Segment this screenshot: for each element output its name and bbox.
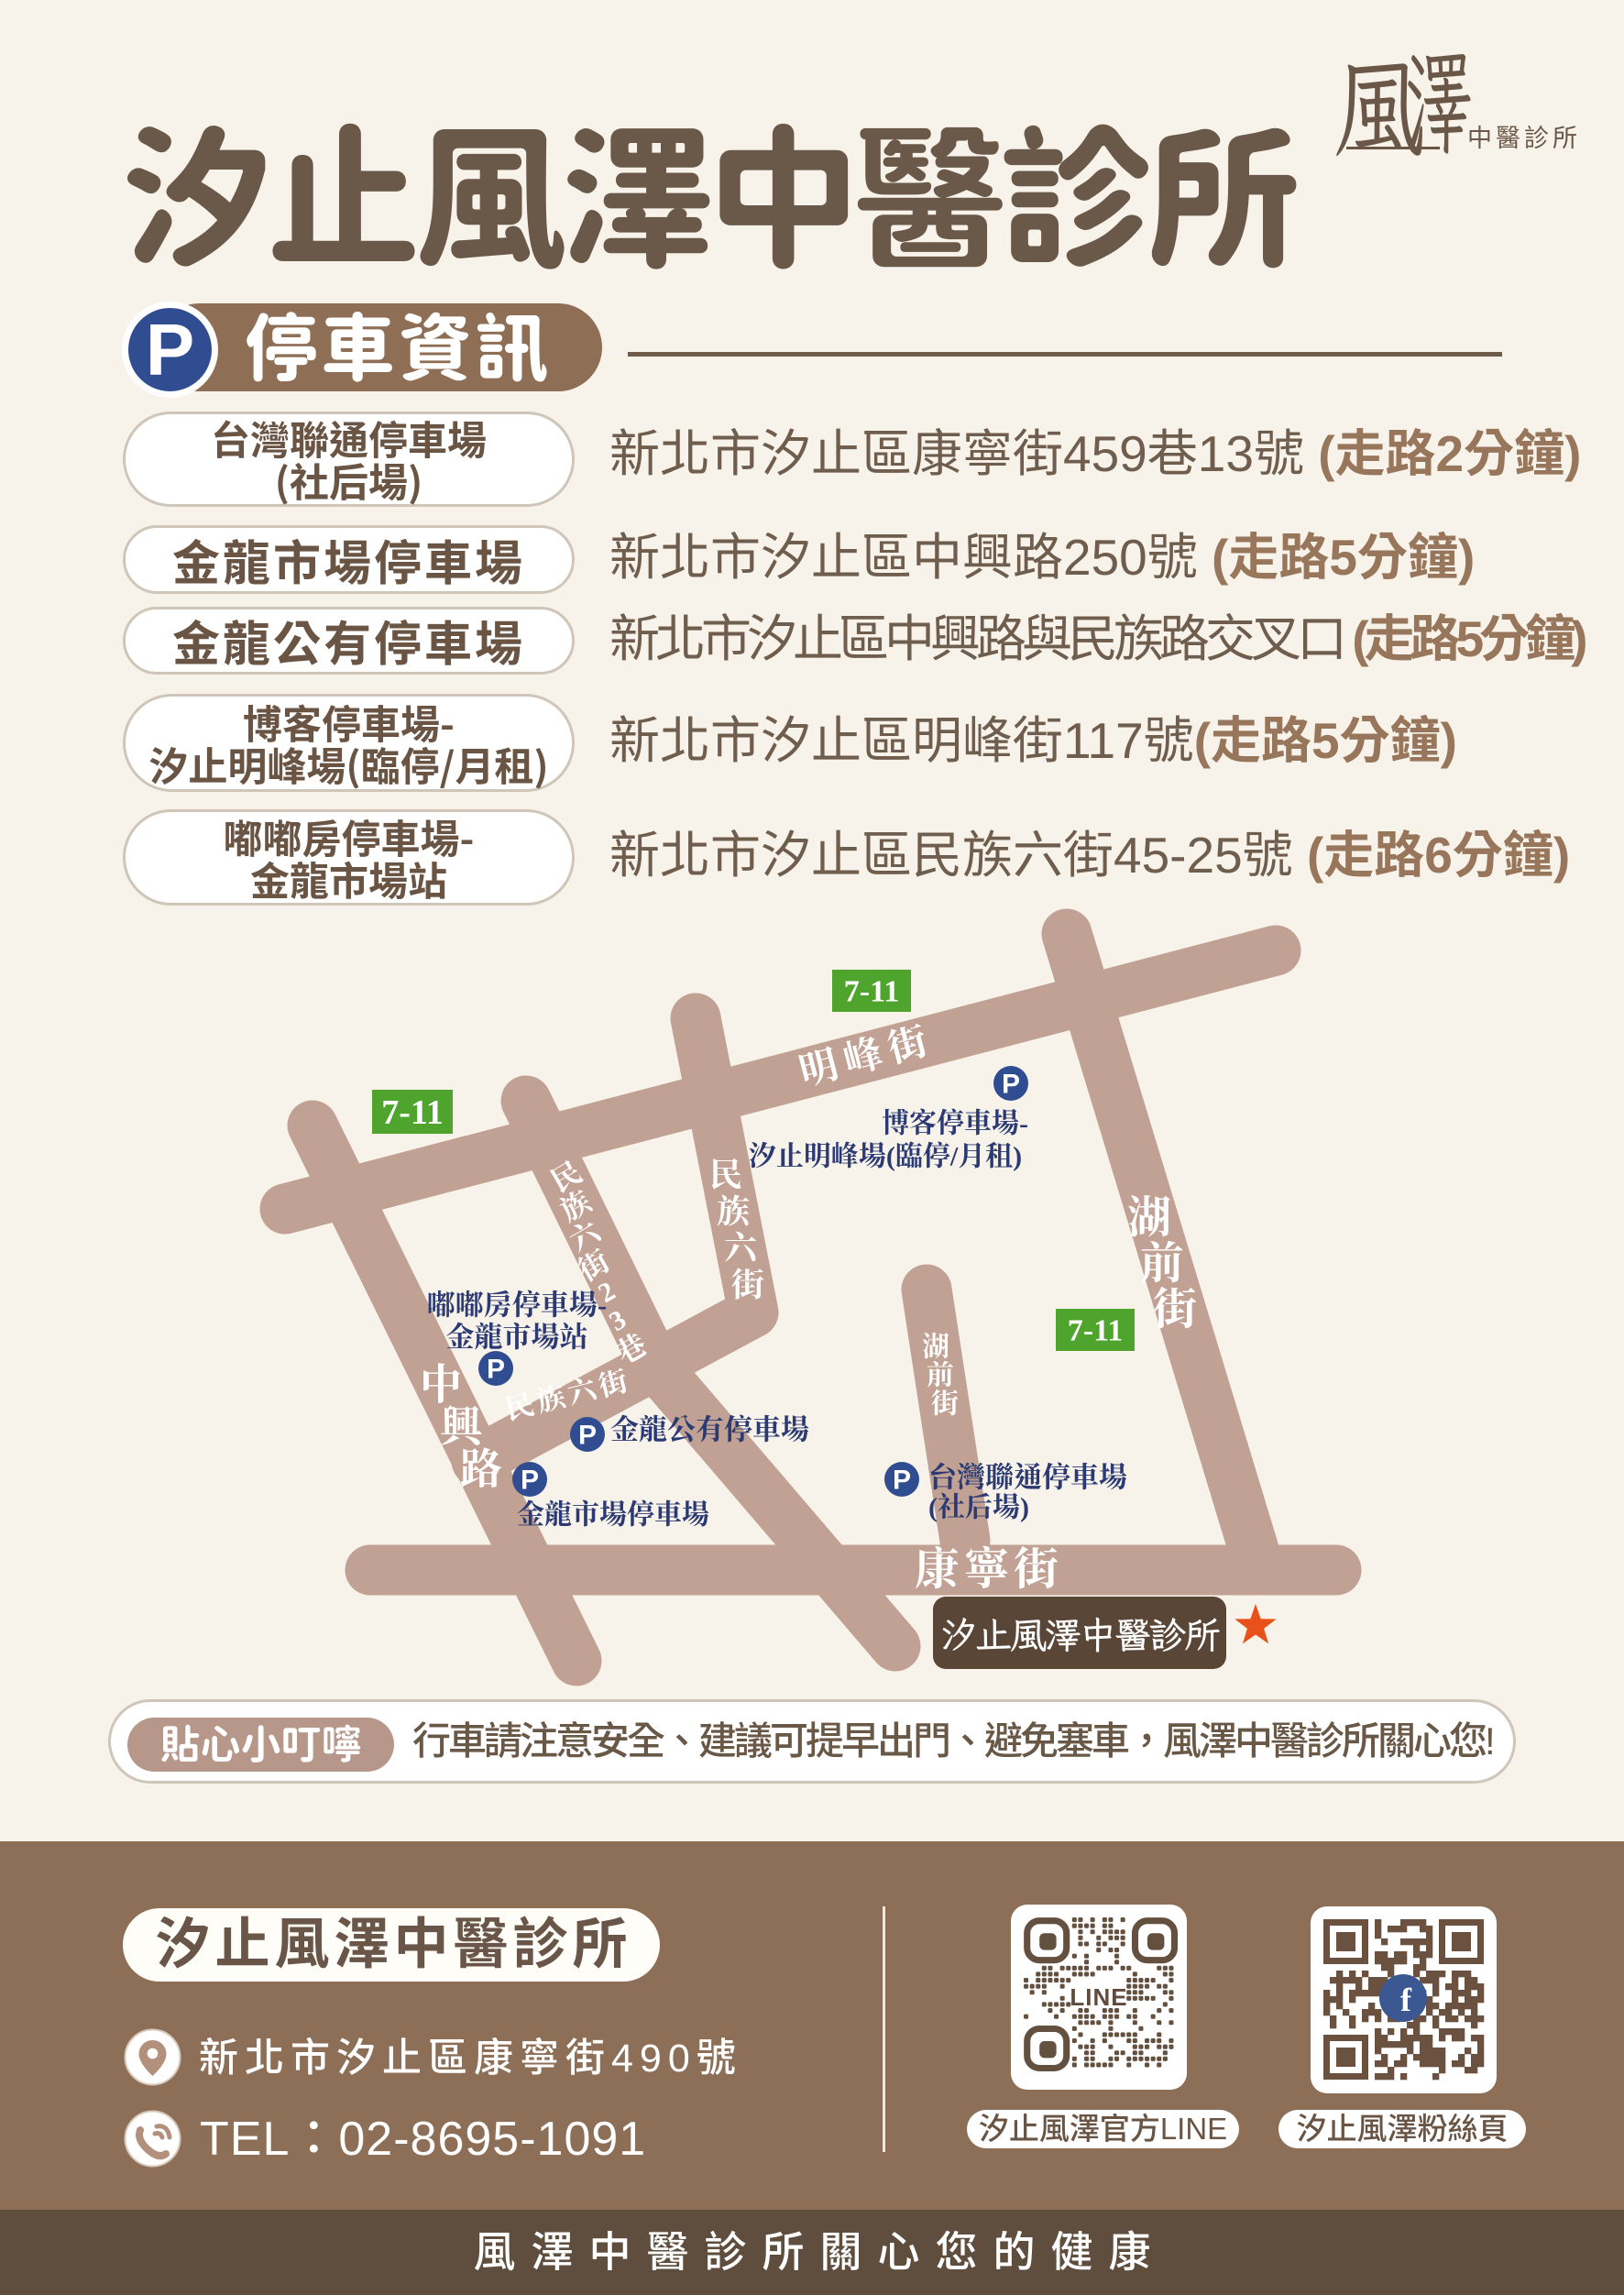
svg-text:P: P [578, 1421, 597, 1451]
svg-text:台灣聯通停車場: 台灣聯通停車場 [928, 1462, 1127, 1494]
svg-text:湖: 湖 [1127, 1194, 1171, 1243]
svg-text:興: 興 [440, 1404, 488, 1451]
svg-text:7-11: 7-11 [1068, 1314, 1123, 1348]
svg-text:康寧街: 康寧街 [915, 1544, 1063, 1595]
svg-text:嘟嘟房停車場-: 嘟嘟房停車場- [427, 1290, 607, 1322]
svg-text:7-11: 7-11 [844, 975, 899, 1009]
svg-text:街: 街 [1153, 1286, 1197, 1334]
svg-text:(社后場): (社后場) [928, 1493, 1029, 1523]
svg-text:金龍公有停車場: 金龍公有停車場 [610, 1414, 809, 1446]
svg-text:湖: 湖 [922, 1333, 949, 1363]
svg-text:f: f [1400, 1982, 1412, 2018]
svg-text:前: 前 [1140, 1240, 1184, 1289]
svg-text:街: 街 [731, 1267, 764, 1303]
svg-text:博客停車場-: 博客停車場- [882, 1109, 1028, 1139]
svg-text:金龍市場停車場: 金龍市場停車場 [517, 1500, 709, 1531]
svg-text:金龍市場站: 金龍市場站 [446, 1322, 588, 1354]
svg-text:汐止風澤中醫診所: 汐止風澤中醫診所 [940, 1611, 1220, 1659]
svg-text:P: P [521, 1466, 539, 1496]
svg-text:路: 路 [460, 1446, 502, 1493]
svg-text:LINE: LINE [1070, 1983, 1127, 2011]
svg-text:P: P [893, 1466, 911, 1496]
svg-text:汐止明峰場(臨停/月租): 汐止明峰場(臨停/月租) [749, 1142, 1022, 1172]
svg-text:六: 六 [724, 1230, 760, 1267]
svg-text:P: P [1002, 1070, 1020, 1100]
svg-text:街: 街 [931, 1389, 959, 1420]
svg-text:7-11: 7-11 [381, 1093, 444, 1132]
svg-text:中: 中 [420, 1362, 462, 1409]
svg-text:P: P [487, 1355, 505, 1385]
svg-text:民: 民 [709, 1157, 742, 1193]
svg-text:族: 族 [717, 1193, 752, 1230]
svg-text:前: 前 [927, 1361, 954, 1391]
